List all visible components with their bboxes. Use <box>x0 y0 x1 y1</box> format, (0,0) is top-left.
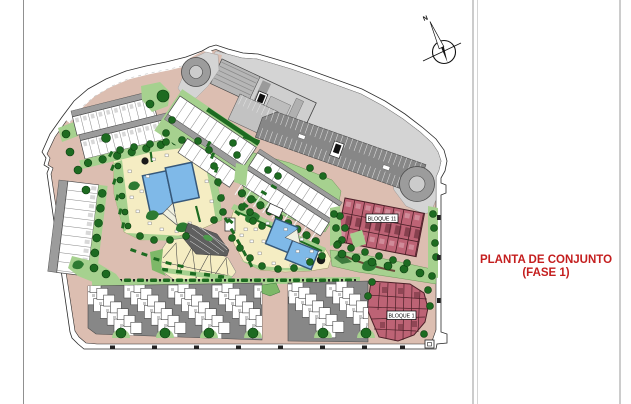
svg-text:(FASE 1): (FASE 1) <box>522 267 569 279</box>
svg-text:BLOQUE 11: BLOQUE 11 <box>368 217 397 223</box>
svg-text:PLANTA DE CONJUNTO: PLANTA DE CONJUNTO <box>480 254 612 266</box>
svg-text:BLOQUE 1: BLOQUE 1 <box>389 314 415 320</box>
